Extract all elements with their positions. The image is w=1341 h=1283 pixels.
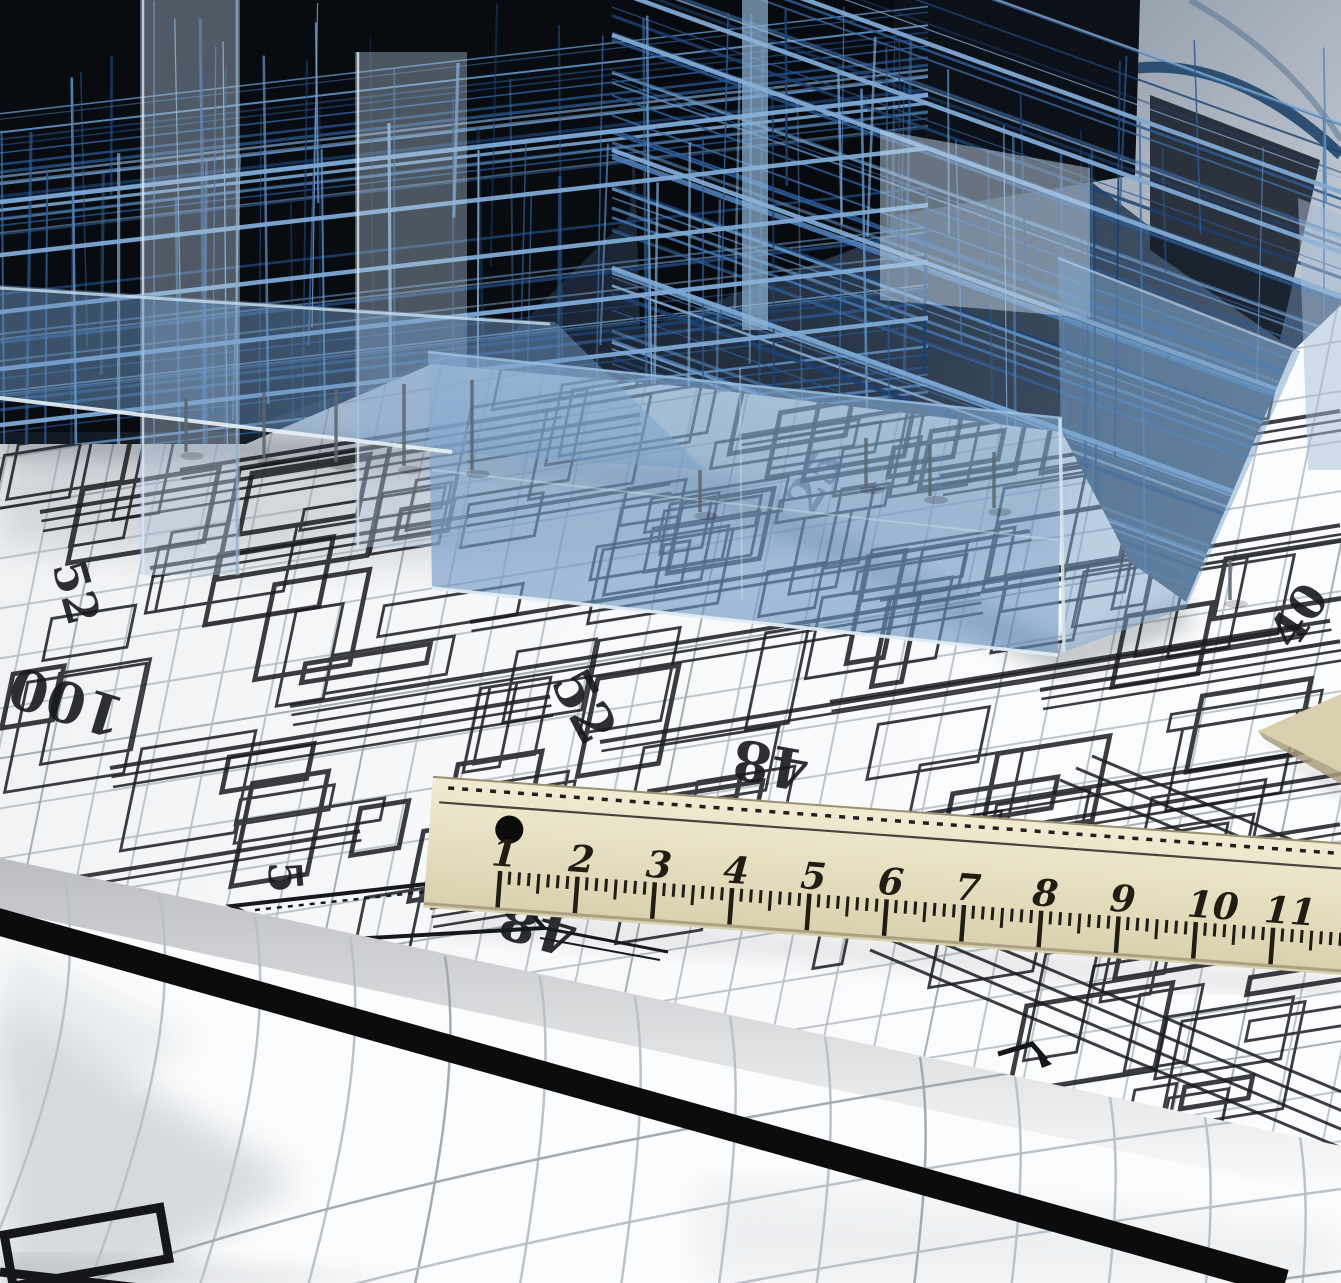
ruler-number: 7 [954, 864, 983, 910]
ruler-number: 9 [1108, 876, 1137, 922]
blueprint-annotation: 5 [257, 859, 313, 895]
screenshot-root: 521005248485402540 [0, 0, 1341, 1283]
ruler-number: 10 [1186, 881, 1241, 929]
ruler-number: 2 [566, 836, 596, 882]
ruler-number: 11 [1263, 887, 1318, 935]
blueprint-scene: 521005248485402540 [0, 0, 1341, 1283]
ruler-number: 1 [490, 830, 519, 876]
ruler-number: 5 [799, 853, 828, 899]
ruler-number: 8 [1030, 870, 1060, 916]
ruler-number: 4 [722, 847, 751, 893]
ruler-number: 6 [876, 859, 905, 905]
ruler-number: 3 [645, 842, 674, 888]
blueprint-annotation: 48 [728, 726, 815, 803]
